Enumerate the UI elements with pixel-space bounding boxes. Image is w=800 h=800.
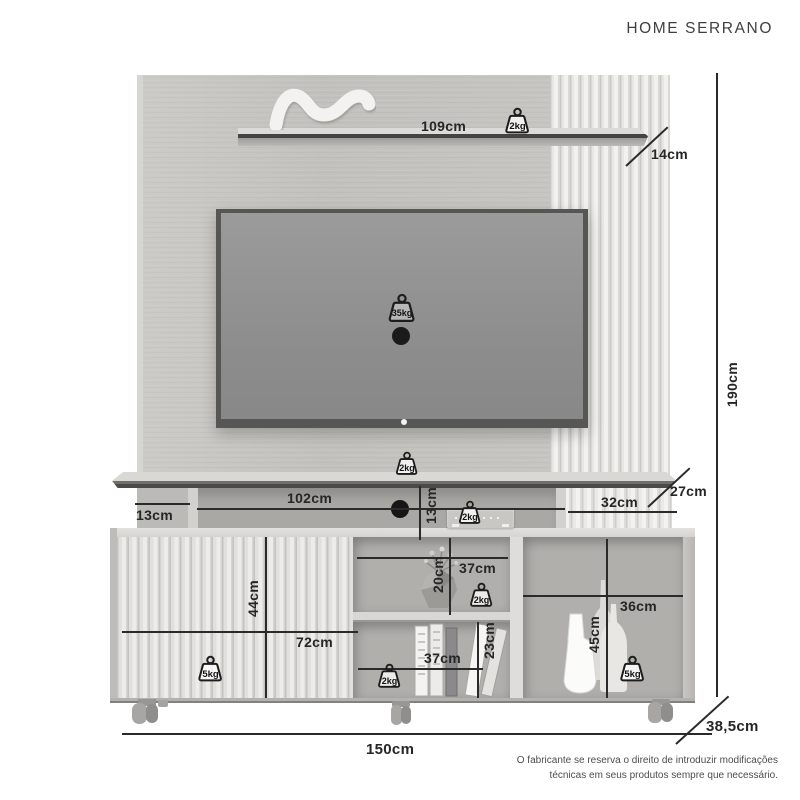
panel-left-edge <box>137 75 143 530</box>
dim-right-comp-height: 45cm <box>586 616 602 653</box>
weight-icon-top-shelf: 2kg <box>502 107 533 136</box>
tv-black-dot <box>392 327 410 345</box>
weight-icon-door: 5kg <box>195 655 226 684</box>
cabinet-right-wall <box>683 537 695 703</box>
weight-label: 2kg <box>467 595 496 605</box>
dim-left-niche-height: 13cm <box>136 507 173 523</box>
dim-total-width: 150cm <box>366 741 414 758</box>
dim-mid-bottom-height: 23cm <box>481 622 497 659</box>
dim-total-depth: 38,5cm <box>706 718 759 735</box>
dim-right-comp-width: 36cm <box>620 598 657 614</box>
niche-divider-right <box>556 482 566 530</box>
weight-label: 2kg <box>456 512 484 522</box>
weight-icon-panel-shelf: 2kg <box>393 451 421 478</box>
dim-line-door-width <box>122 631 358 633</box>
dim-line-door-height <box>265 537 267 698</box>
weight-label: 2kg <box>393 463 421 473</box>
dim-mid-top-width: 37cm <box>459 560 496 576</box>
weight-label: 35kg <box>385 308 419 318</box>
sculpture-decor <box>266 84 376 130</box>
dim-mid-bottom-width: 37cm <box>424 650 461 666</box>
caster-wheel-middle <box>386 701 416 725</box>
dim-line-right-comp-width <box>523 595 683 597</box>
weight-icon-mid-top: 2kg <box>467 582 496 610</box>
cabinet-left-edge <box>110 528 117 703</box>
dim-line-mid-top-height <box>449 538 451 615</box>
dim-line-console-niche-width <box>197 508 565 510</box>
dim-line-right-comp-height <box>606 539 608 698</box>
dim-total-height: 190cm <box>724 362 740 407</box>
tv-led-dot <box>401 419 407 425</box>
dim-door-width: 72cm <box>296 634 333 650</box>
manufacturer-disclaimer: O fabricante se reserva o direito de int… <box>430 754 778 783</box>
weight-label: 5kg <box>195 669 226 680</box>
weight-icon-right: 5kg <box>617 655 648 684</box>
cabinet-slatted-doors <box>117 537 353 698</box>
weight-label: 2kg <box>375 676 404 686</box>
caster-wheel-right <box>644 699 682 724</box>
weight-label: 5kg <box>617 669 648 680</box>
dim-console-niche-width: 102cm <box>287 490 332 506</box>
weight-icon-tv: 35kg <box>385 293 419 325</box>
dim-right-niche-width: 32cm <box>601 494 638 510</box>
dim-top-shelf-depth: 14cm <box>651 146 688 162</box>
cabinet-top <box>110 528 695 537</box>
product-dimension-diagram: HOME SERRANO <box>0 0 800 800</box>
weight-label: 2kg <box>502 121 533 132</box>
weight-icon-mid-bottom: 2kg <box>375 663 404 691</box>
dim-line-left-niche <box>135 503 190 505</box>
dim-line-total-height <box>716 73 718 697</box>
dim-console-niche-height: 13cm <box>423 487 439 524</box>
weight-icon-console: 2kg <box>456 500 484 527</box>
disclaimer-line2: técnicas em seus produtos sempre que nec… <box>550 770 778 781</box>
cabinet-divider <box>510 537 523 698</box>
dim-mid-top-height: 20cm <box>430 556 446 593</box>
dim-panel-shelf-depth: 27cm <box>670 483 707 499</box>
dim-line-mid-bottom-height <box>477 622 479 698</box>
dim-line-total-width <box>122 733 712 735</box>
dim-door-height: 44cm <box>245 580 261 617</box>
dim-line-console-niche-height <box>419 486 421 540</box>
caster-wheel-left <box>129 699 171 725</box>
dim-top-shelf-length: 109cm <box>421 118 466 134</box>
dim-line-right-niche-width <box>568 511 677 513</box>
page-title: HOME SERRANO <box>480 20 773 38</box>
disclaimer-line1: O fabricante se reserva o direito de int… <box>517 755 778 766</box>
